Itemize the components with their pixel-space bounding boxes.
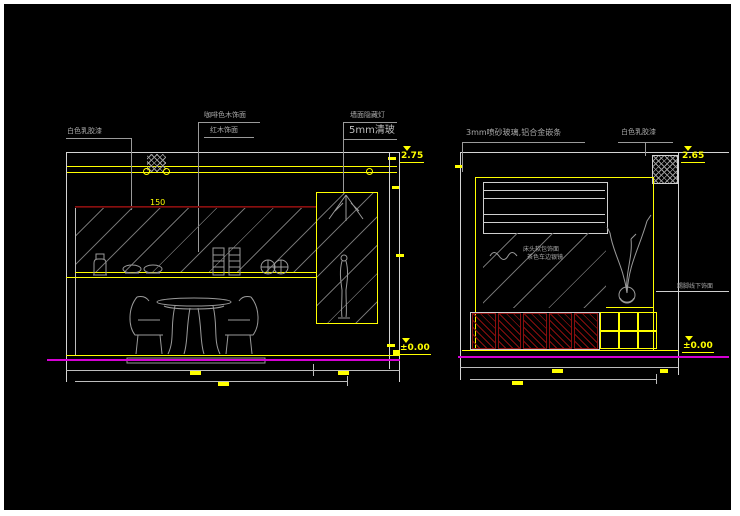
dim-line-bottom-2 <box>470 379 656 380</box>
louver-line <box>484 222 605 223</box>
floor-line <box>66 355 400 356</box>
panel-arrow-drawing <box>321 193 371 221</box>
cabinet-top-line <box>475 177 654 178</box>
cabinet-door-row <box>470 312 600 350</box>
crown-offset-dim: 150 <box>150 198 165 207</box>
leader-line <box>656 291 729 292</box>
floor-datum-line <box>458 356 729 358</box>
dim-tick <box>347 376 348 386</box>
squiggle-drawing <box>488 249 522 261</box>
leader-line <box>343 122 397 123</box>
crown-line-upper <box>66 166 397 167</box>
leader-line <box>462 142 463 172</box>
dim-line-right <box>678 152 679 375</box>
louver-line <box>484 190 605 191</box>
level-mark-top: 2.65 <box>681 146 705 163</box>
paint-label: 白色乳胶漆 <box>67 127 102 136</box>
leader-line <box>343 122 344 195</box>
wood-finish-label: 咖啡色木饰面 <box>204 111 246 120</box>
dim-text-tick <box>455 165 462 168</box>
crown-offset-line <box>75 206 316 207</box>
cabinet-door-cell <box>549 313 573 349</box>
level-value: 2.75 <box>400 151 424 163</box>
floor-datum-line <box>47 359 400 361</box>
leader-line <box>343 139 397 140</box>
cad-canvas: 白色乳胶漆 咖啡色木饰面 红木饰面 墙面隐藏灯 5mm清玻 150 <box>0 0 740 516</box>
leader-line <box>198 122 260 123</box>
left-boundary-line <box>66 152 67 382</box>
paint-label: 白色乳胶漆 <box>621 128 656 137</box>
statue-drawing <box>334 252 354 320</box>
drawer-cell <box>619 331 638 350</box>
left-boundary-line <box>460 152 461 380</box>
drawer-grid <box>600 312 657 349</box>
leader-line <box>66 138 132 139</box>
cabinet-door-cell <box>574 313 598 349</box>
crown-line-lower <box>66 172 397 173</box>
dim-text-tick <box>552 369 563 373</box>
dim-text-tick <box>512 381 523 385</box>
level-value: ±0.00 <box>399 343 431 355</box>
dim-tick <box>313 364 314 376</box>
mirror-note-line2: 茶色车边银镜 <box>527 253 563 262</box>
dim-text-tick <box>392 186 399 189</box>
drawer-cell <box>638 331 657 350</box>
dim-text-tick <box>218 382 229 386</box>
drawer-cell <box>638 312 657 331</box>
leader-line <box>131 138 132 210</box>
dim-text-tick <box>190 371 201 375</box>
glass-label: 5mm清玻 <box>349 125 395 136</box>
dim-line-right <box>389 152 390 369</box>
leader-line <box>204 137 254 138</box>
wood-trim-label: 红木饰面 <box>210 126 238 135</box>
floor-end-tick <box>393 350 400 355</box>
cabinet-door-cell <box>523 313 547 349</box>
dim-text-tick <box>396 254 404 257</box>
hidden-light-label: 墙面隐藏灯 <box>350 111 385 120</box>
frosted-glass-label: 3mm喷砂玻璃,铝合金嵌条 <box>466 128 561 137</box>
louver-line <box>484 198 605 199</box>
cabinet-door-cell <box>498 313 522 349</box>
image-border-right <box>731 0 740 516</box>
dining-set-drawing <box>80 240 320 370</box>
dim-text-tick <box>338 371 349 375</box>
drawer-cell <box>600 331 619 350</box>
dim-line-bottom-1 <box>66 370 400 371</box>
pin-circle <box>163 168 170 175</box>
level-mark-top: 2.75 <box>400 146 424 163</box>
level-value: ±0.00 <box>682 341 714 353</box>
cabinet-door-cell <box>472 313 496 349</box>
dim-text-tick <box>387 344 395 347</box>
dim-line-bottom-1 <box>460 367 678 368</box>
decor-shelf-line <box>606 307 653 308</box>
level-value: 2.65 <box>681 151 705 163</box>
image-border-left <box>0 0 4 516</box>
pin-circle <box>143 168 150 175</box>
leader-line <box>462 142 585 143</box>
pin-circle <box>366 168 373 175</box>
floor-line <box>462 350 678 351</box>
drawer-cell <box>600 312 619 331</box>
dim-line-bottom-2 <box>75 381 347 382</box>
drawer-cell <box>619 312 638 331</box>
level-mark-bottom: ±0.00 <box>682 336 714 353</box>
image-border-bottom <box>0 510 740 516</box>
level-mark-bottom: ±0.00 <box>399 338 431 355</box>
ceiling-line <box>66 152 400 153</box>
dim-tick <box>656 374 657 384</box>
wall-hatch-block <box>652 155 678 184</box>
louver-line <box>484 214 605 215</box>
image-border-top <box>0 0 740 4</box>
leader-line <box>645 142 646 156</box>
dim-text-tick <box>660 369 668 373</box>
skirting-note: 踢脚线下饰面 <box>677 282 713 291</box>
plant-drawing <box>605 205 655 305</box>
